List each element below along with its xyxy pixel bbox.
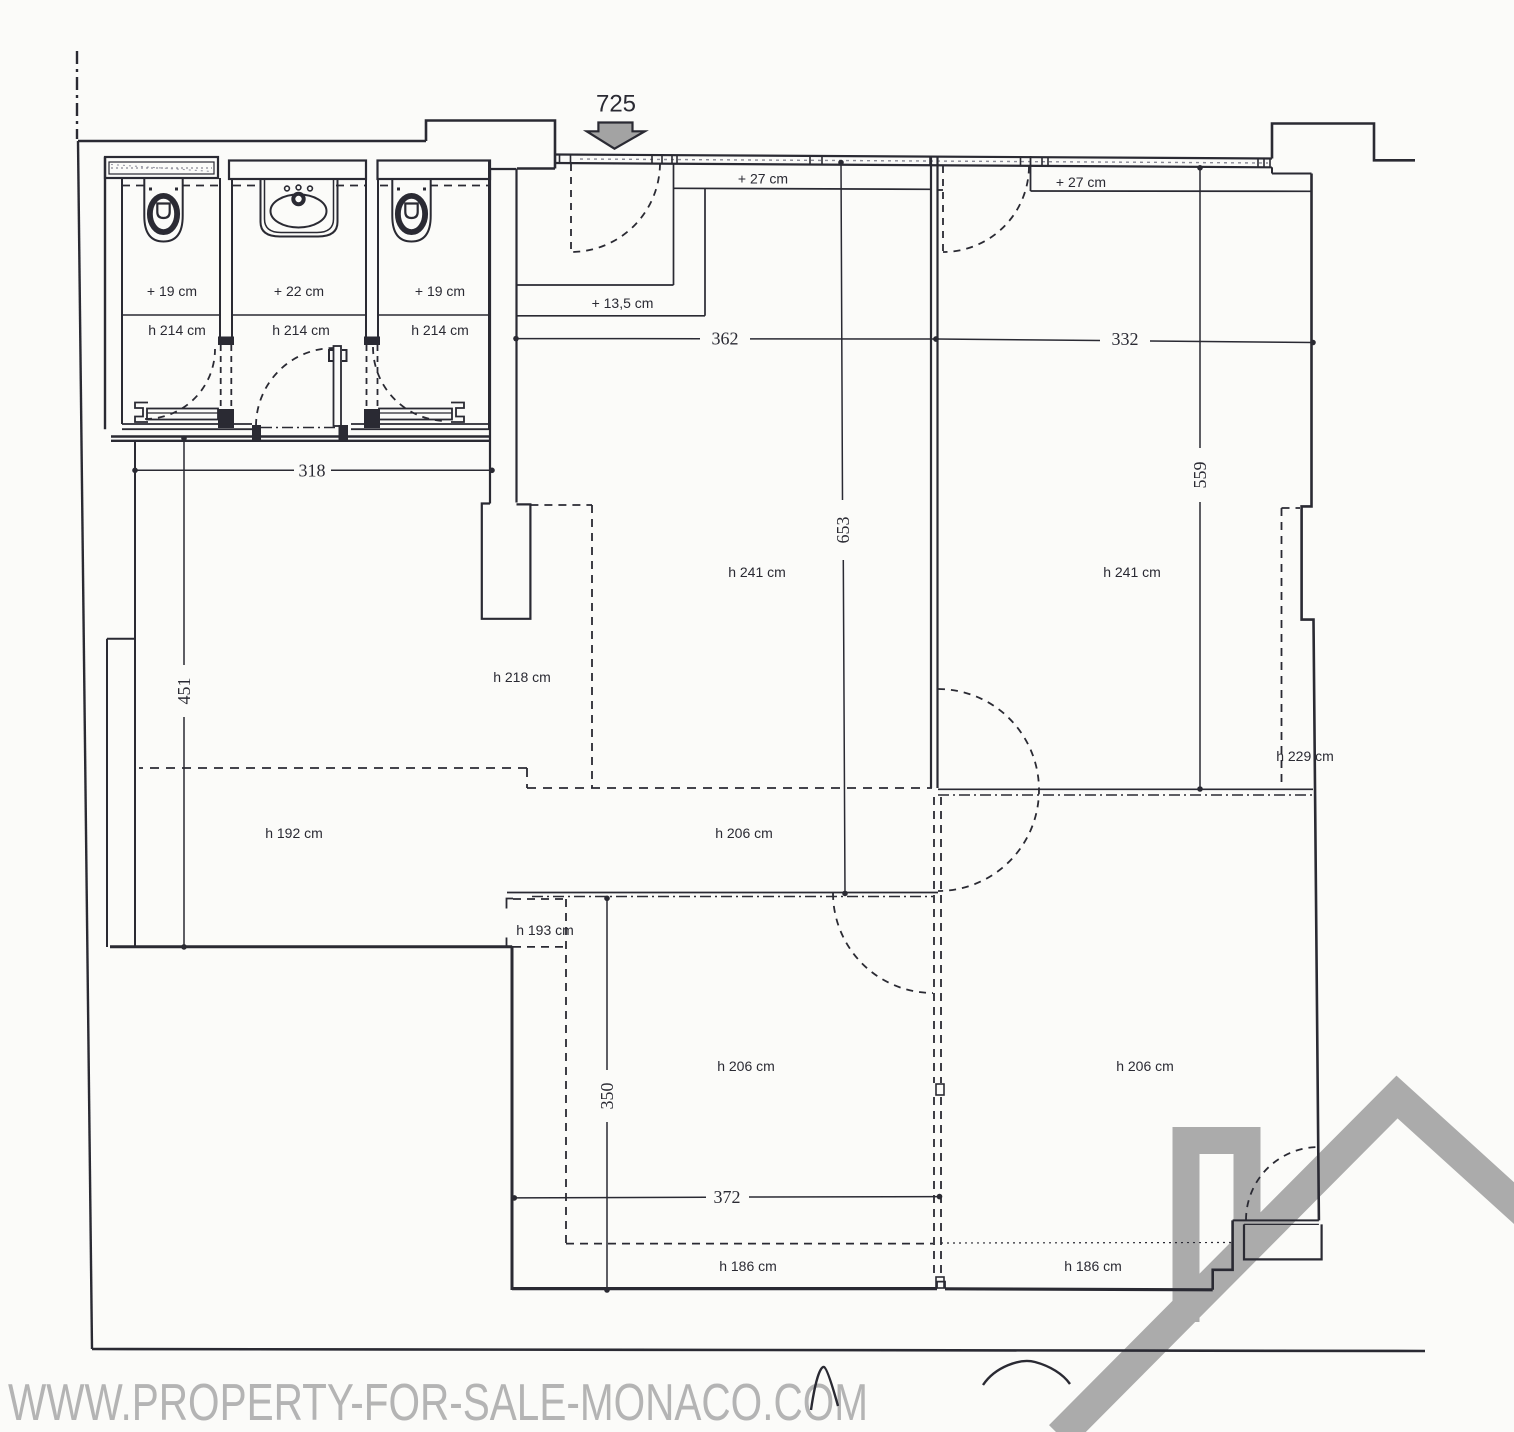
svg-text:h 192 cm: h 192 cm	[265, 825, 323, 841]
svg-text:h 214 cm: h 214 cm	[148, 322, 206, 338]
svg-text:725: 725	[596, 91, 636, 118]
svg-text:332: 332	[1112, 329, 1139, 349]
svg-text:+ 19 cm: + 19 cm	[147, 283, 197, 299]
svg-text:+ 22 cm: + 22 cm	[274, 283, 324, 299]
svg-text:+ 19 cm: + 19 cm	[415, 283, 465, 299]
svg-text:451: 451	[174, 678, 194, 705]
svg-text:362: 362	[712, 329, 739, 349]
svg-text:h 218 cm: h 218 cm	[493, 669, 551, 685]
svg-text:h 241 cm: h 241 cm	[1103, 564, 1161, 580]
svg-text:+ 13,5 cm: + 13,5 cm	[592, 295, 654, 311]
svg-text:h 206 cm: h 206 cm	[715, 825, 773, 841]
svg-text:653: 653	[833, 517, 853, 544]
svg-text:h 241 cm: h 241 cm	[728, 564, 786, 580]
svg-text:559: 559	[1190, 462, 1210, 489]
svg-text:h 193 cm: h 193 cm	[516, 922, 574, 938]
svg-text:318: 318	[299, 460, 326, 480]
svg-text:350: 350	[597, 1083, 617, 1110]
svg-text:+ 27 cm: + 27 cm	[738, 171, 788, 187]
svg-text:h 214 cm: h 214 cm	[272, 322, 330, 338]
svg-text:h 186 cm: h 186 cm	[719, 1258, 777, 1274]
svg-text:h 229 cm: h 229 cm	[1276, 748, 1334, 764]
svg-text:h 206 cm: h 206 cm	[717, 1058, 775, 1074]
svg-text:+ 27 cm: + 27 cm	[1056, 174, 1106, 190]
svg-text:372: 372	[714, 1187, 741, 1207]
svg-text:h 206 cm: h 206 cm	[1116, 1058, 1174, 1074]
svg-text:h 186 cm: h 186 cm	[1064, 1258, 1122, 1274]
svg-text:h 214 cm: h 214 cm	[411, 322, 469, 338]
svg-text:WWW.PROPERTY-FOR-SALE-MONACO.C: WWW.PROPERTY-FOR-SALE-MONACO.COM	[8, 1374, 868, 1432]
